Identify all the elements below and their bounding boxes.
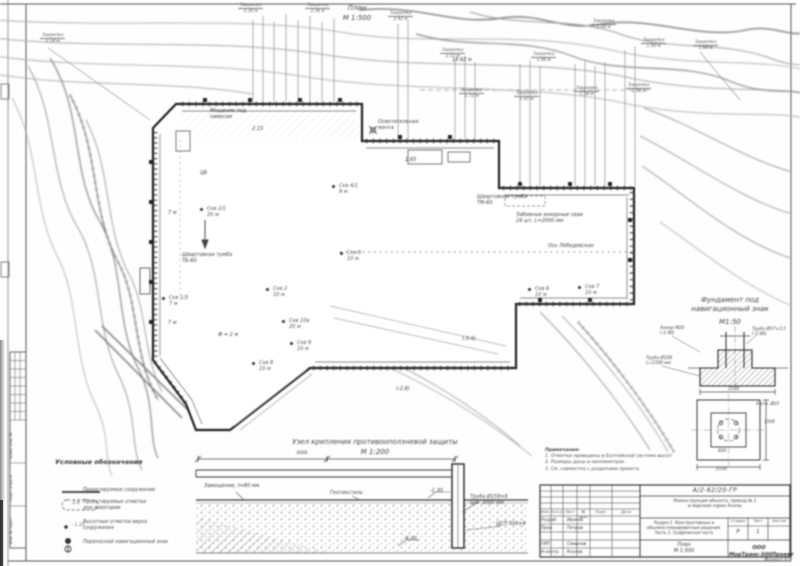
legend-item-label: Переносной навигационный знак (83, 540, 178, 546)
foundation-detail-title: Фундамент под навигационный знак (675, 296, 785, 314)
notes-lines: 1. Отметки приведены в Балтийской систем… (545, 454, 705, 473)
sig-name: Петров (567, 525, 591, 530)
legend: Условные обозначения (55, 458, 235, 466)
side-strip-label: Подп. и дата (8, 468, 13, 509)
format-label: Формат А3 (700, 558, 790, 563)
tb-col-list: Лист (563, 510, 577, 515)
section-detail-drawing (195, 456, 528, 553)
legend-symbol-value: -2.8 (71, 501, 80, 506)
foundation-detail-scale: М1:50 (675, 318, 785, 327)
stage-value: Р (728, 529, 748, 536)
legend-item-label: Высотные отметки верха сооружения (83, 520, 178, 532)
sig-name: Иванов (567, 517, 591, 522)
stage-label: Стадия (728, 519, 748, 524)
berth-plan-outline (140, 98, 634, 430)
sig-role: Разраб. (541, 517, 565, 522)
sheet-value: 1 (748, 529, 768, 536)
drawing-name: План М 1:500 (642, 542, 726, 555)
sig-role: ГИП (541, 541, 565, 546)
section-detail-scale: М 1:200 (250, 448, 500, 457)
company-name: ООО МорТранс-500Проект (729, 545, 789, 558)
legend-item-label: Проектируемые отметки дна акватории (83, 500, 178, 512)
sheet-label: Лист (748, 519, 768, 524)
object-name: Реконструкция объекта, проезд № 1 в морс… (640, 499, 790, 510)
doc-code: А/2-62/20-ГР (640, 487, 790, 495)
section-detail-title: Узел крепления противооползневой защиты (250, 438, 500, 447)
sig-name: Смирнов (567, 541, 591, 546)
drawing-artwork: План М 1:500 Закрепка 2.14 м Закрепка 2.… (0, 0, 800, 566)
sig-role: Пров. (541, 525, 565, 530)
note-line: 3. См. совместно с разделами проекта. (545, 467, 705, 473)
site-plan-drawing (0, 0, 800, 566)
sheets-label: Листов (768, 519, 790, 524)
side-strip-label: Взам. инв. № (8, 425, 13, 466)
scan-edge-shadow-dark (0, 500, 3, 566)
notes-block: Примечания: 1. Отметки приведены в Балти… (545, 448, 705, 473)
plan-title: План М 1:500 (322, 4, 392, 24)
drawing-sheet: План М 1:500 Закрепка 2.14 м Закрепка 2.… (0, 0, 800, 566)
sig-role: Н.контр. (541, 549, 565, 554)
light-mast-icon (369, 126, 377, 134)
sig-name: Козлов (567, 549, 591, 554)
legend-item-label: Проектируемое сооружение (83, 488, 178, 494)
tb-col-podp: Подп. (590, 510, 612, 515)
section-dim: 3000 (296, 451, 307, 456)
tb-col-izm: Изм. (540, 510, 551, 515)
sheet-title: Раздел 1. Конструктивные и объемно-плани… (642, 520, 726, 535)
legend-symbol-value: – 1.25 (71, 523, 85, 528)
tb-col-data: Дата (612, 510, 640, 515)
side-strip-label: Инв. № подл. (8, 511, 13, 551)
tb-col-koluch: Кол.уч (551, 510, 563, 515)
legend-title: Условные обозначения (55, 458, 235, 466)
